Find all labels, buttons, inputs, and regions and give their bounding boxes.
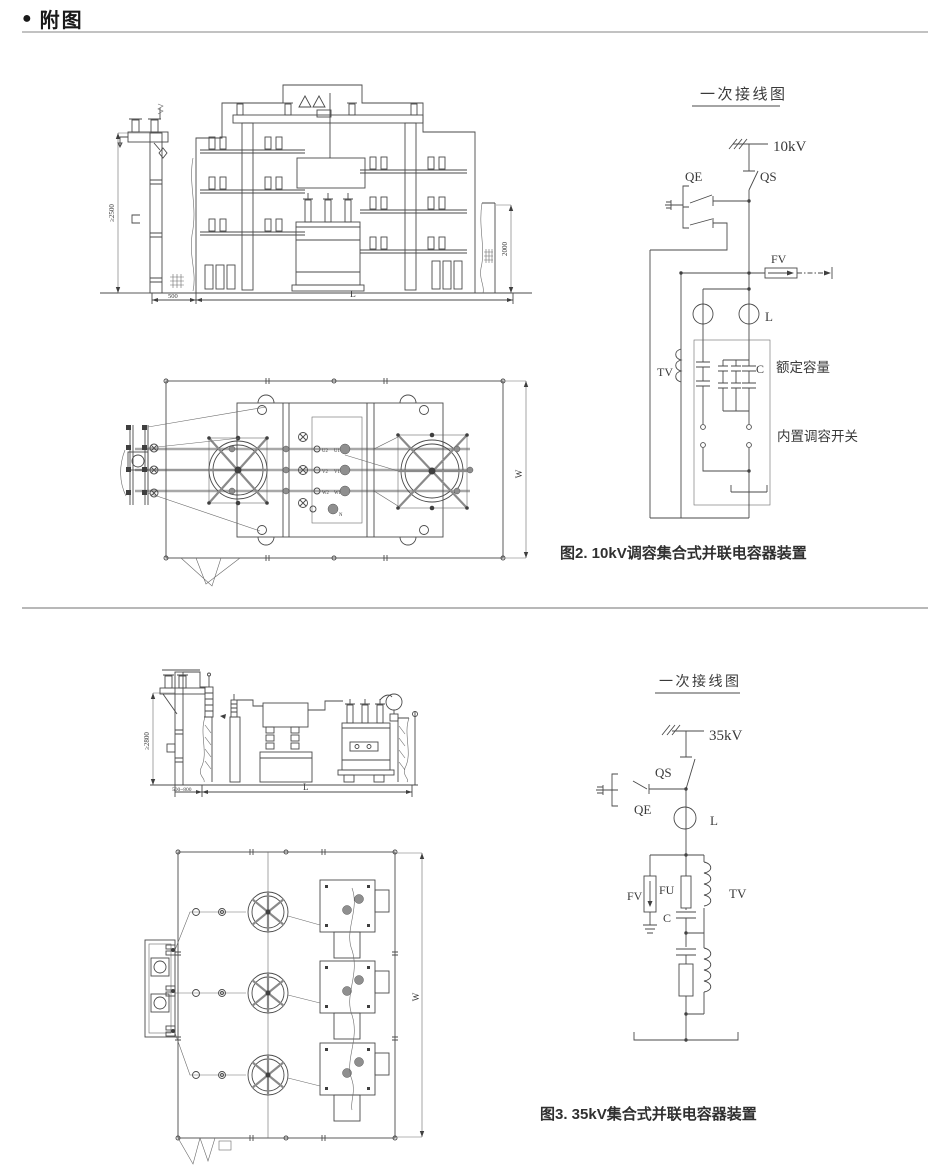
fig3-plan-view-drawing: W [138, 828, 438, 1168]
fig3-label-l: L [710, 813, 718, 828]
fig2-plan-right-fan [396, 433, 469, 511]
fig2-plan-view-drawing: W [115, 365, 540, 580]
terminal-n: N [339, 513, 343, 518]
fig3-plan-wires [175, 909, 320, 1087]
fig3-equipment [183, 672, 402, 782]
fig2-oneline-circuit [650, 139, 832, 518]
section-divider [22, 607, 928, 609]
fig2-dim-length: L [350, 290, 356, 300]
fig3-dim-height: ≥2800 [143, 732, 151, 750]
fig2-break-line [170, 158, 194, 291]
fig3-front-elevation-drawing: ≥2800 500~800 L [125, 650, 445, 815]
fig3-label-qe: QE [634, 802, 651, 817]
fig2-plan-bottom-marks [181, 558, 240, 586]
fig3-plan-reactors [248, 892, 288, 1095]
terminal-v1: V1 [334, 470, 340, 475]
fig2-plan-dim-width: W [514, 469, 524, 478]
fig2-dim-offset: 500 [168, 293, 178, 300]
page-header: ● 附图 [22, 4, 84, 33]
fig2-oneline-title: 一次接线图 [700, 86, 788, 103]
terminal-w1: W1 [334, 491, 342, 496]
fig3-plan-bottom-marks [178, 1138, 231, 1164]
fig2-caption: 图2. 10kV调容集合式并联电容器装置 [560, 542, 807, 563]
bullet-icon: ● [22, 11, 32, 27]
fig3-oneline-title: 一次接线图 [659, 673, 742, 690]
fig3-label-c: C [663, 911, 671, 925]
header-rule [22, 31, 928, 33]
fig2-label-rated-capacity: 额定容量 [776, 359, 830, 375]
fig3-plan-dim-width: W [411, 992, 421, 1001]
fig2-label-l: L [765, 309, 773, 324]
fig2-dim-height: ≥2500 [108, 204, 116, 222]
fig2-label-builtin-switch: 内置调容开关 [777, 428, 858, 444]
fig2-dim-fence: 2000 [501, 242, 509, 257]
fig3-plan-switch-boxes [320, 880, 389, 1121]
fig3-fences [200, 712, 417, 786]
terminal-u2: U2 [322, 449, 328, 454]
fig3-label-qs: QS [655, 765, 672, 780]
fig2-plan-left-assembly [121, 425, 158, 505]
fig3-caption: 图3. 35kV集合式并联电容器装置 [540, 1103, 757, 1124]
fig3-oneline-diagram: 一次接线图 35kV QS QE L FV FU TV [585, 655, 950, 1055]
fig2-beam-insulators [235, 103, 419, 115]
fig2-pole [118, 104, 168, 293]
terminal-u1: U1 [334, 449, 340, 454]
fig2-structure [196, 85, 475, 293]
fig3-dim-offset: 500~800 [172, 787, 192, 793]
fig3-label-voltage: 35kV [709, 728, 743, 744]
fig3-label-fu: FU [659, 883, 675, 897]
fig2-ground-and-dims [100, 133, 532, 304]
fig2-label-tv: TV [657, 365, 673, 379]
fig2-plan-left-fan [207, 436, 269, 506]
fig2-label-c: C [756, 362, 764, 376]
fig2-oneline-diagram: 一次接线图 Q [615, 75, 950, 535]
fig2-label-fv: FV [771, 252, 787, 266]
fig2-label-qs: QS [760, 169, 777, 184]
fig3-label-tv: TV [729, 886, 747, 901]
fig3-dim-length: L [303, 782, 309, 792]
fig2-fence [481, 203, 495, 293]
terminal-w2: W2 [322, 491, 330, 496]
fig3-plan-frame [175, 849, 424, 1141]
fig2-plan-terminal-block: U2 U1 V2 V1 W2 W1 N [299, 433, 351, 519]
page-title: 附图 [40, 4, 84, 33]
fig2-front-elevation-drawing: ≥2500 500 L 2000 [88, 62, 593, 312]
fig3-plan-left-assembly [145, 940, 175, 1037]
fig2-label-qe: QE [685, 169, 702, 184]
terminal-v2: V2 [322, 470, 328, 475]
fig3-label-fv: FV [627, 889, 643, 903]
fig2-label-voltage: 10kV [773, 139, 807, 155]
fig3-pole [160, 670, 205, 785]
